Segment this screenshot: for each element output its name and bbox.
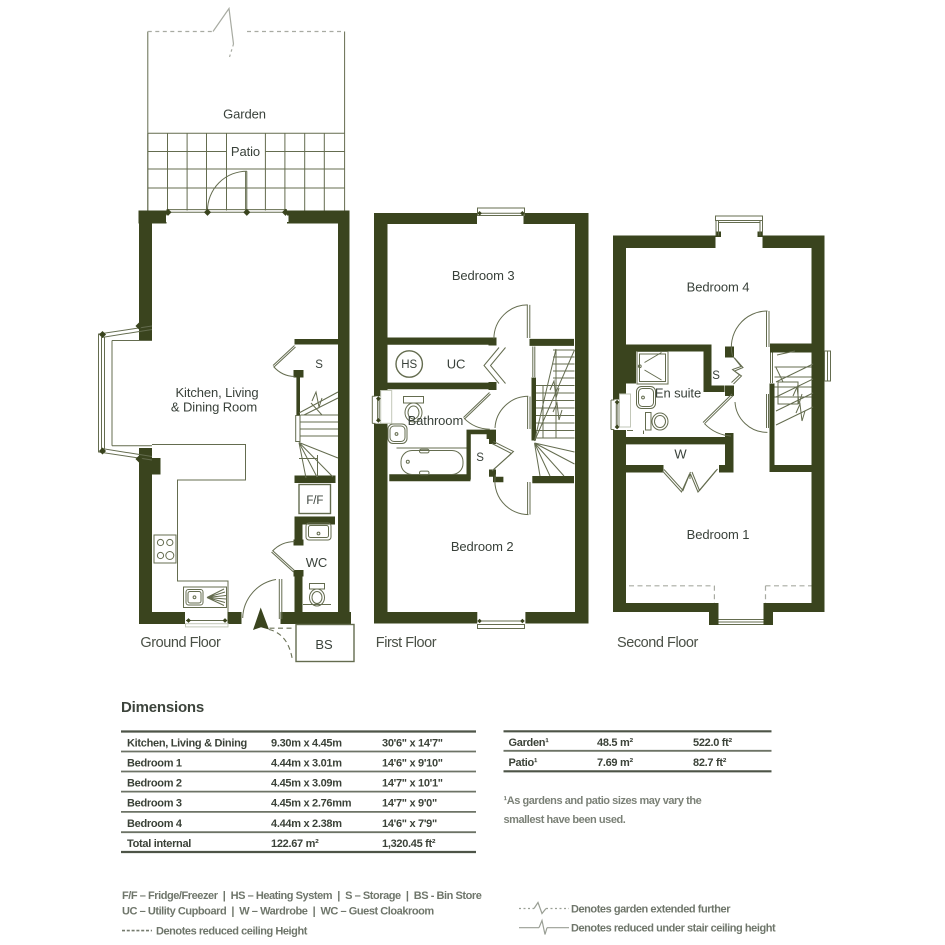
svg-text:Second Floor: Second Floor	[617, 635, 698, 651]
svg-text:smallest have been used.: smallest have been used.	[504, 814, 626, 826]
svg-text:82.7 ft²: 82.7 ft²	[693, 757, 727, 769]
svg-text:Kitchen, Living: Kitchen, Living	[175, 385, 258, 400]
svg-text:S: S	[315, 359, 323, 371]
svg-text:Bedroom 3: Bedroom 3	[127, 798, 182, 810]
svg-text:Bedroom 4: Bedroom 4	[127, 818, 183, 830]
svg-text:S: S	[476, 452, 484, 464]
svg-text:Bedroom 1: Bedroom 1	[687, 527, 750, 542]
svg-text:Bathroom: Bathroom	[408, 413, 464, 428]
svg-text:Bedroom 2: Bedroom 2	[451, 539, 514, 554]
svg-text:& Dining Room: & Dining Room	[171, 400, 257, 415]
svg-text:F/F: F/F	[306, 495, 323, 507]
svg-text:Garden: Garden	[223, 107, 266, 122]
svg-text:Dimensions: Dimensions	[121, 699, 204, 716]
svg-text:14'7" x 9'0": 14'7" x 9'0"	[382, 798, 437, 810]
svg-text:522.0 ft²: 522.0 ft²	[693, 737, 733, 749]
svg-text:4.44m x 2.38m: 4.44m x 2.38m	[271, 818, 342, 830]
svg-text:Patio¹: Patio¹	[509, 757, 538, 769]
svg-text:Bedroom 3: Bedroom 3	[452, 268, 515, 283]
svg-text:Total internal: Total internal	[127, 838, 191, 850]
svg-text:BS: BS	[315, 637, 333, 652]
svg-text:En suite: En suite	[655, 386, 701, 401]
svg-text:S: S	[712, 370, 720, 382]
svg-text:UC – Utility Cupboard | W –: UC – Utility Cupboard | W – Wardrobe | W…	[122, 906, 434, 918]
svg-text:48.5 m²: 48.5 m²	[597, 737, 633, 749]
svg-text:Bedroom 1: Bedroom 1	[127, 758, 182, 770]
svg-text:14'7" x 10'1": 14'7" x 10'1"	[382, 778, 443, 790]
svg-text:HS: HS	[401, 359, 417, 371]
svg-text:UC: UC	[447, 357, 466, 372]
svg-text:4.45m x 3.09m: 4.45m x 3.09m	[271, 778, 342, 790]
svg-text:7.69 m²: 7.69 m²	[597, 757, 633, 769]
svg-text:First Floor: First Floor	[376, 635, 437, 651]
svg-text:30'6" x 14'7": 30'6" x 14'7"	[382, 738, 443, 750]
svg-text:4.45m x 2.76mm: 4.45m x 2.76mm	[271, 798, 352, 810]
svg-text:F/F – Fridge/Freezer | HS –: F/F – Fridge/Freezer | HS – Heating Syst…	[122, 890, 482, 902]
svg-text:14'6" x 9'10": 14'6" x 9'10"	[382, 758, 443, 770]
svg-text:4.44m x 3.01m: 4.44m x 3.01m	[271, 758, 342, 770]
svg-text:W: W	[674, 447, 687, 462]
svg-text:Bedroom 4: Bedroom 4	[687, 280, 750, 295]
svg-text:9.30m x 4.45m: 9.30m x 4.45m	[271, 738, 342, 750]
svg-text:Denotes garden extended furthe: Denotes garden extended further	[571, 904, 731, 916]
svg-text:122.67 m²: 122.67 m²	[271, 838, 319, 850]
svg-text:¹As gardens and patio sizes ma: ¹As gardens and patio sizes may vary the	[504, 795, 702, 807]
svg-text:Bedroom 2: Bedroom 2	[127, 778, 182, 790]
svg-text:Denotes reduced ceiling Height: Denotes reduced ceiling Height	[156, 926, 308, 938]
svg-text:Ground Floor: Ground Floor	[140, 635, 221, 651]
svg-text:Kitchen, Living & Dining: Kitchen, Living & Dining	[127, 738, 247, 750]
svg-text:WC: WC	[306, 555, 327, 570]
svg-text:14'6" x 7'9": 14'6" x 7'9"	[382, 818, 437, 830]
svg-text:Patio: Patio	[231, 144, 260, 159]
svg-text:Denotes reduced under stair ce: Denotes reduced under stair ceiling heig…	[571, 923, 776, 935]
svg-text:Garden¹: Garden¹	[509, 737, 550, 749]
svg-text:1,320.45 ft²: 1,320.45 ft²	[382, 838, 436, 850]
